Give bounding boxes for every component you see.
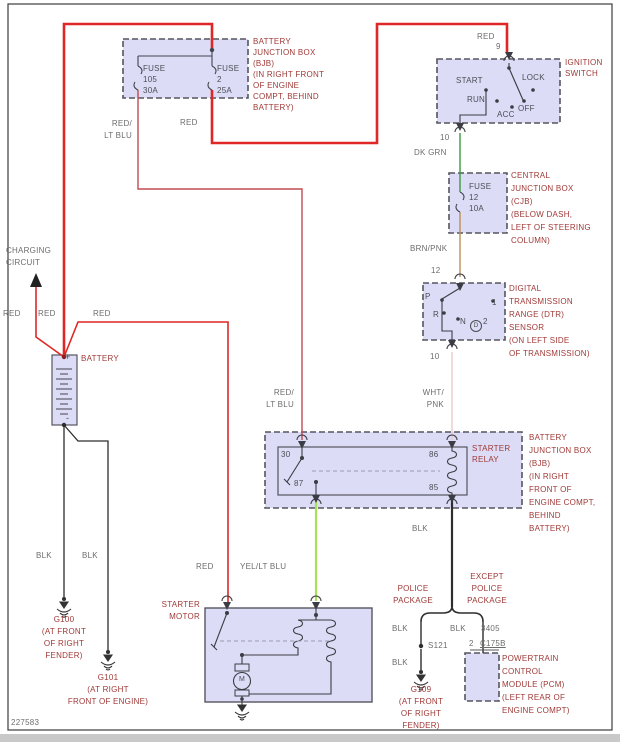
wire-label-red-lt-blu-mid: RED/LT BLU: [258, 387, 294, 411]
charging-circuit-arrow-icon: [30, 273, 42, 287]
fuse-105-label: FUSE10530A: [143, 63, 165, 96]
pcm-connector-label: C175B: [480, 639, 506, 648]
wire-label-blk-g101: BLK: [82, 551, 98, 560]
relay-87-contact-dot: [314, 480, 318, 484]
wire-label-red-charging: RED: [3, 309, 21, 318]
fuse-2-label: FUSE225A: [217, 63, 239, 96]
motor-terminal-top: [235, 664, 249, 671]
starter-motor-label: STARTERMOTOR: [148, 599, 200, 623]
wire-label-yel-lt-blu: YEL/LT BLU: [240, 562, 286, 571]
battery-label: BATTERY: [81, 354, 119, 363]
wire-label-red-starter-feed: RED: [93, 309, 111, 318]
bjb-relay-label: BATTERYJUNCTION BOX(BJB)(IN RIGHTFRONT O…: [529, 431, 595, 535]
dtr-pos-2: 2: [483, 317, 488, 326]
relay-terminal-30: 30: [281, 450, 290, 459]
pcm-label: POWERTRAINCONTROLMODULE (PCM)(LEFT REAR …: [502, 652, 570, 717]
branch-brace-right: [452, 606, 483, 622]
relay-terminal-86: 86: [429, 450, 438, 459]
wire-label-red-starter: RED: [196, 562, 214, 571]
ignition-pos-acc: ACC: [497, 110, 515, 119]
dtr-terminal-10: 10: [430, 352, 439, 361]
dtr-pos-n: N: [460, 317, 466, 326]
doc-number: 227583: [11, 718, 39, 727]
splice-s121-label: S121: [428, 641, 448, 650]
relay-30-contact-dot: [300, 456, 304, 460]
dtr-pos-p: P: [425, 292, 431, 301]
dtr-terminal-12: 12: [431, 266, 440, 275]
wire-label-blk-pcm: BLK: [450, 624, 466, 633]
ignition-terminal-10: 10: [440, 133, 449, 142]
starter-ground-icon: [235, 705, 249, 720]
relay-terminal-85: 85: [429, 483, 438, 492]
wiring-diagram: BATTERYJUNCTION BOX(BJB)(IN RIGHT FRONTO…: [0, 0, 620, 742]
battery-plus-sign: +: [65, 352, 71, 362]
pcm-box: [465, 653, 499, 701]
ground-g101-label: G101(AT RIGHTFRONT OF ENGINE): [56, 672, 160, 708]
starter-switch-dot: [225, 611, 229, 615]
wire-label-dk-grn: DK GRN: [414, 148, 447, 157]
splice-s121-dot: [419, 644, 423, 648]
starter-solenoid-dot: [314, 613, 318, 617]
wire-red-battery-to-starter: [64, 322, 228, 602]
ground-g101-icon: [101, 651, 115, 671]
wire-label-red-top: RED: [180, 118, 198, 127]
starter-node-dot: [240, 653, 244, 657]
circuit-3405-label: 3405: [481, 624, 500, 633]
dtr-pos-1: 1: [492, 298, 497, 307]
dtr-label: DIGITALTRANSMISSIONRANGE (DTR)SENSOR(ON …: [509, 282, 590, 360]
wire-label-blk-g100: BLK: [36, 551, 52, 560]
branch-brace-left: [421, 606, 452, 622]
bottom-bar: [0, 734, 620, 742]
wire-label-red-lt-blu-top: RED/LT BLU: [88, 118, 132, 142]
ignition-pos-off: OFF: [518, 104, 535, 113]
wire-label-brn-pnk: BRN/PNK: [410, 244, 447, 253]
junction-dot-battery-negative: [62, 423, 66, 427]
wire-label-wht-pnk: WHT/PNK: [412, 387, 444, 411]
ground-g109-label: G109(AT FRONTOF RIGHTFENDER): [389, 684, 453, 732]
wire-label-blk-relay: BLK: [412, 524, 428, 533]
except-police-package-label: EXCEPTPOLICEPACKAGE: [461, 571, 513, 607]
dtr-pos-d: D: [470, 320, 482, 332]
bjb-top-label: BATTERYJUNCTION BOX(BJB)(IN RIGHT FRONTO…: [253, 36, 324, 113]
wire-label-blk-police-1: BLK: [392, 624, 408, 633]
motor-terminal-bottom: [235, 690, 249, 696]
dtr-pos-r: R: [433, 310, 439, 319]
motor-m-letter: M: [239, 676, 245, 683]
junction-dot-bjb: [210, 48, 214, 52]
starter-relay-label: STARTERRELAY: [472, 443, 510, 465]
relay-terminal-87: 87: [294, 479, 303, 488]
ignition-pos-lock: LOCK: [522, 73, 545, 82]
cjb-label: CENTRALJUNCTION BOX(CJB)(BELOW DASH,LEFT…: [511, 169, 591, 247]
battery-minus-sign: -: [66, 413, 69, 423]
wire-red-to-charging-circuit: [36, 287, 64, 357]
pcm-pin-2-label: 2: [469, 639, 474, 648]
ignition-pos-start: START: [456, 76, 483, 85]
ground-g100-label: G100(AT FRONTOF RIGHTFENDER): [32, 614, 96, 662]
ignition-switch-label: IGNITIONSWITCH: [565, 57, 603, 79]
wire-label-red-battery: RED: [38, 309, 56, 318]
wire-label-blk-police-2: BLK: [392, 658, 408, 667]
motor-ground-dot: [240, 697, 244, 701]
wire-label-red-ignition: RED: [477, 32, 495, 41]
charging-circuit-label: CHARGINGCIRCUIT: [6, 245, 51, 269]
fuse-12-label: FUSE1210A: [469, 181, 491, 214]
ignition-pos-run: RUN: [467, 95, 485, 104]
ignition-terminal-9: 9: [496, 42, 501, 51]
police-package-label: POLICEPACKAGE: [389, 583, 437, 607]
